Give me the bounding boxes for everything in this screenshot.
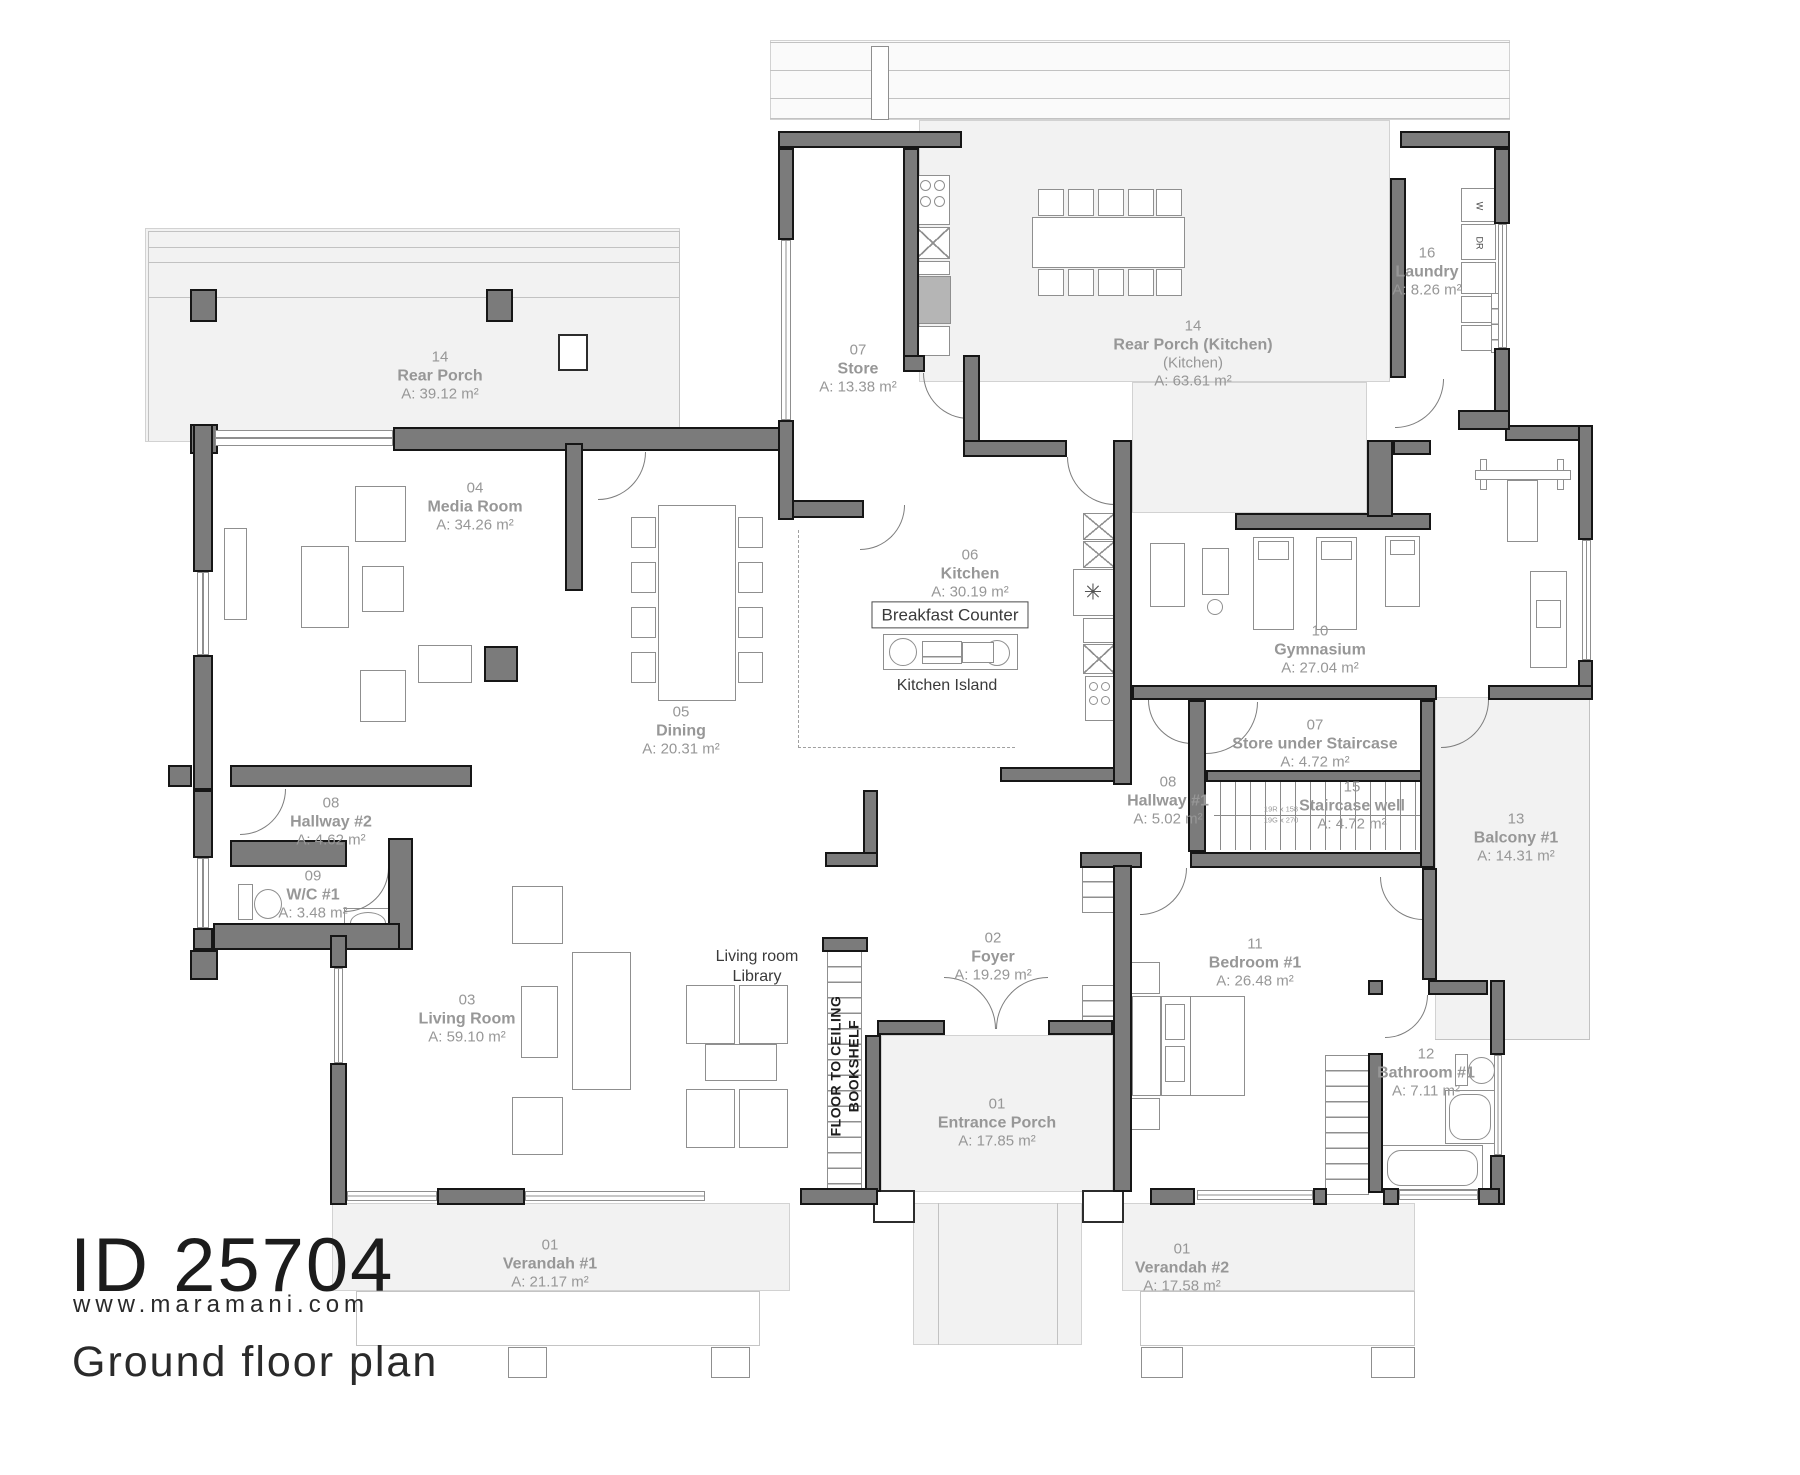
bench [1507, 480, 1538, 542]
pantry-box [1083, 513, 1115, 540]
annotation-kitchen-island: Kitchen Island [897, 676, 998, 696]
furniture-item [738, 562, 763, 593]
window [197, 572, 209, 655]
door-arc [996, 977, 1048, 1029]
room-label-dining: 05DiningA: 20.31 m² [642, 703, 720, 758]
room-label-living-room: 03Living RoomA: 59.10 m² [419, 991, 516, 1046]
stair-step-line [1415, 782, 1416, 850]
gym-seat [1536, 600, 1561, 628]
wall-segment [865, 1035, 881, 1192]
furniture-item [1128, 269, 1154, 296]
annotation-19r-x-158: 19R x 158 [1264, 804, 1298, 813]
wall-segment [1190, 852, 1422, 868]
annotation-breakfast-counter: Breakfast Counter [871, 601, 1028, 628]
treadmill-console [1321, 541, 1352, 560]
wall-segment [778, 148, 794, 240]
bathtub-inner [1387, 1150, 1478, 1186]
stair-step-line [1220, 782, 1221, 850]
room-label-store-under-staircase: 07Store under StaircaseA: 4.72 m² [1232, 716, 1397, 771]
step-pillar [711, 1347, 750, 1378]
nightstand [1130, 962, 1160, 994]
wall-segment [792, 500, 864, 518]
wall-segment [1420, 700, 1435, 868]
wall-segment [825, 852, 878, 867]
media-armchair [355, 486, 406, 542]
wall-segment [1113, 440, 1132, 785]
room-label-rear-porch: 14Rear PorchA: 39.12 m² [397, 348, 482, 403]
door-arc [345, 868, 389, 912]
fr circ [1089, 682, 1098, 691]
furniture-item [1038, 189, 1064, 216]
room-label-staircase-well: 15Staircase wellA: 4.72 m² [1299, 778, 1405, 833]
media-sofa [301, 546, 349, 628]
living-armchair [512, 1097, 563, 1155]
plan-line [679, 231, 680, 441]
furniture-item [631, 607, 656, 638]
room-label-w-c-1: 09W/C #1A: 3.48 m² [278, 867, 347, 922]
island-board [962, 642, 994, 663]
annotation-living-room: Living room Library [716, 947, 799, 987]
furniture-item [1038, 269, 1064, 296]
door-arc [1385, 995, 1428, 1038]
media-bench [418, 645, 472, 683]
room-label-media-room: 04Media RoomA: 34.26 m² [427, 479, 522, 534]
furniture-item [1156, 189, 1182, 216]
plan-line [1057, 1203, 1058, 1345]
furniture-item [1098, 189, 1124, 216]
outdoor-dining-table [1032, 217, 1185, 268]
porch-pillar [1082, 1190, 1124, 1223]
window [215, 430, 393, 446]
wall-segment [1400, 131, 1510, 148]
wall-segment [800, 1188, 878, 1205]
fr circ [920, 196, 931, 207]
page-title: Ground floor plan [72, 1338, 438, 1387]
wall-segment [1368, 980, 1383, 995]
window [334, 968, 343, 1063]
laundry-machine [1461, 325, 1493, 351]
wardrobe [1325, 1055, 1369, 1195]
rear-porch-kitchen-floor-lower [1132, 382, 1367, 513]
room-label-kitchen: 06KitchenA: 30.19 m² [931, 546, 1009, 601]
wall-segment [193, 424, 213, 572]
plan-line [770, 42, 1510, 43]
stair-step-line [1235, 782, 1236, 850]
window [1498, 224, 1507, 348]
wall-segment [213, 923, 400, 950]
room-label-foyer: 02FoyerA: 19.29 m² [954, 929, 1032, 984]
porch-pillar [873, 1190, 915, 1223]
furniture-item [686, 1089, 735, 1148]
floor-plan-canvas: 14Rear PorchA: 39.12 m²04Media RoomA: 34… [0, 0, 1800, 1475]
porch-pillar [558, 334, 588, 371]
wall-segment [903, 148, 919, 358]
wall-segment [168, 765, 192, 787]
roof-post [871, 46, 889, 120]
wall-segment [863, 790, 878, 854]
furniture-item [1128, 189, 1154, 216]
furniture-item [739, 1089, 788, 1148]
wall-segment [1578, 425, 1593, 540]
pillow [1165, 1004, 1185, 1040]
library-table [705, 1044, 777, 1081]
laundry-shelf [1461, 262, 1496, 294]
room-label-gymnasium: 10GymnasiumA: 27.04 m² [1274, 622, 1366, 677]
wall-segment [1313, 1188, 1327, 1205]
treadmill-console [1258, 541, 1289, 560]
window [1399, 1190, 1478, 1200]
nightstand [1130, 1098, 1160, 1130]
cabinet [916, 326, 950, 356]
cabinet [1083, 644, 1115, 674]
plan-line [938, 1203, 939, 1345]
door-arc [860, 505, 905, 550]
annotation-floor-to-ceiling: FLOOR TO CEILING BOOKSHELF [828, 996, 863, 1137]
room-label-balcony-1: 13Balcony #1A: 14.31 m² [1474, 810, 1558, 865]
step-pillar [1371, 1347, 1415, 1378]
wall-segment [1494, 148, 1510, 224]
media-chair [360, 670, 406, 722]
tv-console [224, 528, 247, 620]
wall-segment [1488, 685, 1593, 700]
window [1494, 1055, 1502, 1155]
wall-segment [486, 289, 513, 322]
furniture-item [1098, 269, 1124, 296]
wall-segment [193, 928, 213, 950]
plan-line [1435, 1039, 1590, 1040]
bed-headboard [1132, 996, 1161, 1096]
step-pillar [508, 1347, 547, 1378]
stair-step-line [1250, 782, 1251, 850]
window [1197, 1190, 1313, 1200]
door-arc [944, 977, 996, 1029]
furniture-item [686, 985, 735, 1044]
dining-table [658, 505, 736, 701]
toilet-tank [238, 884, 253, 920]
wall-segment [565, 443, 583, 591]
door-arc [240, 789, 286, 835]
window [1582, 540, 1591, 660]
fr circ [920, 180, 931, 191]
fr [1390, 540, 1415, 555]
cabinet [916, 227, 950, 259]
plan-line [148, 231, 679, 232]
rear-porch-floor [145, 228, 680, 442]
plan-line [148, 247, 679, 248]
cabinet [916, 261, 950, 275]
wall-segment [1048, 1020, 1113, 1035]
wall-segment [190, 950, 218, 980]
room-label-verandah-2: 01Verandah #2A: 17.58 m² [1135, 1240, 1229, 1295]
furniture-item [738, 517, 763, 548]
furniture-item [631, 652, 656, 683]
furniture-item [1068, 189, 1094, 216]
door-arc [1067, 457, 1115, 505]
island-sink [889, 638, 917, 666]
fr circ [934, 180, 945, 191]
closet [1082, 866, 1114, 913]
furniture-item [1068, 269, 1094, 296]
room-label-verandah-1: 01Verandah #1A: 21.17 m² [503, 1236, 597, 1291]
furniture-item [1156, 269, 1182, 296]
wall-segment [1422, 868, 1437, 980]
island-grill [922, 641, 962, 664]
wall-segment [1428, 980, 1488, 995]
room-label-store: 07StoreA: 13.38 m² [819, 341, 897, 396]
window [525, 1191, 705, 1201]
wall-segment [393, 427, 792, 451]
pantry-box [1083, 541, 1115, 568]
gym-machine [1202, 548, 1229, 595]
fr circ [1101, 696, 1110, 705]
wall-segment [1150, 1188, 1195, 1205]
cabinet [1083, 618, 1115, 643]
wall-segment [484, 646, 518, 682]
room-label-rear-porch-kitchen: 14Rear Porch (Kitchen)(Kitchen)A: 63.61 … [1113, 317, 1272, 390]
wall-segment [822, 937, 868, 952]
kitchen-counter-dashed [798, 747, 1015, 748]
wall-segment [963, 440, 1067, 457]
door-arc [1140, 868, 1187, 915]
wall-segment [1000, 767, 1115, 782]
furniture-item [738, 607, 763, 638]
wall-segment [193, 655, 213, 790]
pillow [1165, 1046, 1185, 1082]
room-label-entrance-porch: 01Entrance PorchA: 17.85 m² [938, 1095, 1056, 1150]
fridge [915, 276, 951, 324]
wall-segment [877, 1020, 945, 1035]
wall-segment [437, 1188, 525, 1205]
window [781, 240, 791, 420]
plan-line [148, 262, 679, 263]
kitchen-counter-dashed [798, 530, 799, 748]
wall-segment [1367, 440, 1393, 517]
living-armchair [512, 886, 563, 944]
media-table [362, 566, 404, 612]
room-label-bedroom-1: 11Bedroom #1A: 26.48 m² [1209, 935, 1301, 990]
wall-segment [1132, 685, 1437, 700]
website-url: www.maramani.com [73, 1291, 369, 1319]
furniture-item [631, 517, 656, 548]
wall-segment [1383, 1188, 1399, 1205]
wall-segment [330, 935, 347, 968]
wall-segment [1393, 440, 1431, 455]
gym-machine [1150, 543, 1185, 607]
window [347, 1191, 437, 1201]
barbell-bar [1475, 470, 1571, 480]
bed-fold-line [1190, 996, 1191, 1096]
annotation-w: W [1473, 202, 1484, 211]
door-arc [598, 452, 646, 500]
room-label-laundry: 16LaundryA: 8.26 m² [1392, 244, 1461, 299]
wall-segment [1490, 980, 1505, 1055]
room-label-hallway-1: 08Hallway #1A: 5.02 m² [1127, 773, 1209, 828]
fr circ [934, 196, 945, 207]
shower-tray [1449, 1094, 1491, 1140]
wall-segment [903, 355, 925, 372]
annotation-: ✳ [1084, 578, 1102, 606]
wall-segment [1235, 513, 1431, 530]
fr circ [1089, 696, 1098, 705]
plan-line [148, 297, 679, 298]
annotation-19g-x-270: 19G x 270 [1264, 815, 1299, 824]
living-sofa [572, 952, 631, 1090]
wall-segment [1080, 852, 1142, 868]
door-arc [1148, 700, 1192, 744]
wall-segment [330, 1063, 347, 1205]
laundry-machine [1461, 296, 1493, 323]
wall-segment [230, 765, 472, 787]
wall-segment [778, 131, 962, 148]
wall-segment [190, 289, 217, 322]
kettlebell [1207, 599, 1223, 615]
room-label-bathroom-1: 12Bathroom #1A: 7.11 m² [1377, 1045, 1475, 1100]
plan-line [1589, 697, 1590, 1040]
wall-segment [1458, 410, 1510, 430]
furniture-item [738, 652, 763, 683]
step-pillar [1141, 1347, 1183, 1378]
coffee-table [521, 986, 558, 1058]
wall-segment [1478, 1188, 1500, 1205]
room-label-hallway-2: 08Hallway #2A: 4.62 m² [290, 794, 372, 849]
plan-line [148, 231, 149, 441]
window [197, 858, 209, 928]
door-arc [1380, 877, 1423, 920]
annotation-dr: DR [1473, 237, 1484, 250]
wall-segment [193, 790, 213, 858]
furniture-item [739, 985, 788, 1044]
wall-segment [1113, 865, 1132, 1192]
wall-segment [1494, 348, 1510, 412]
verandah2-steps [1140, 1291, 1415, 1346]
furniture-item [631, 562, 656, 593]
fr circ [1101, 682, 1110, 691]
door-arc [1395, 379, 1444, 428]
